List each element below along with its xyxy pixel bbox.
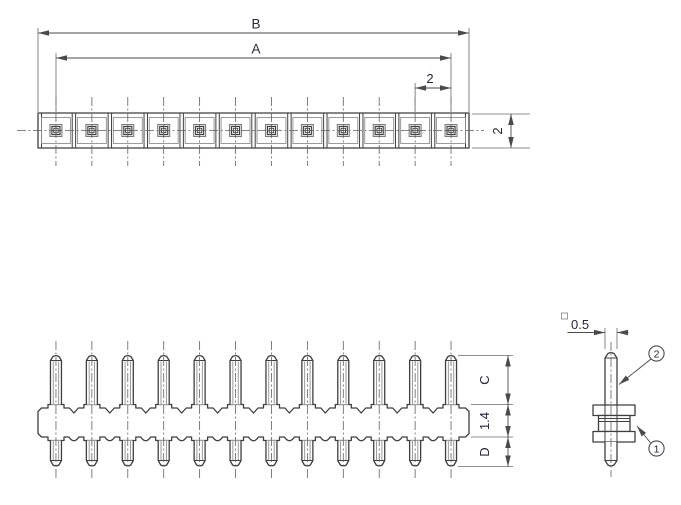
front-view: C 1.4 D	[38, 341, 513, 479]
body-flange-bottom	[593, 432, 635, 443]
top-view-strip	[17, 97, 484, 166]
insulator-body	[38, 405, 469, 441]
dim-label-pitch: 2	[426, 71, 433, 86]
dim-label-pin-square: 0.5	[571, 317, 589, 332]
body-flange-top	[593, 405, 635, 416]
dim-label-overall: B	[251, 17, 260, 32]
callout-leader	[637, 426, 651, 444]
dim-label-pin-bottom: D	[477, 447, 492, 456]
callout-body-number: 1	[654, 444, 660, 456]
dim-label-pin-top: C	[477, 375, 492, 384]
dim-label-pin-span: A	[251, 42, 260, 57]
square-section-symbol	[562, 313, 568, 319]
callout-leader	[619, 359, 651, 385]
technical-drawing: B A 2 2 C 1.4 D	[0, 0, 681, 505]
body-web	[599, 416, 631, 432]
top-view: B A 2 2	[17, 17, 530, 167]
dim-label-width: 2	[490, 127, 505, 134]
side-view: 0.5 2 1	[562, 313, 665, 477]
drawing-canvas: B A 2 2 C 1.4 D	[0, 0, 681, 505]
callout-pin-number: 2	[654, 349, 660, 361]
dim-label-body: 1.4	[477, 412, 492, 430]
front-view-body	[38, 341, 469, 479]
